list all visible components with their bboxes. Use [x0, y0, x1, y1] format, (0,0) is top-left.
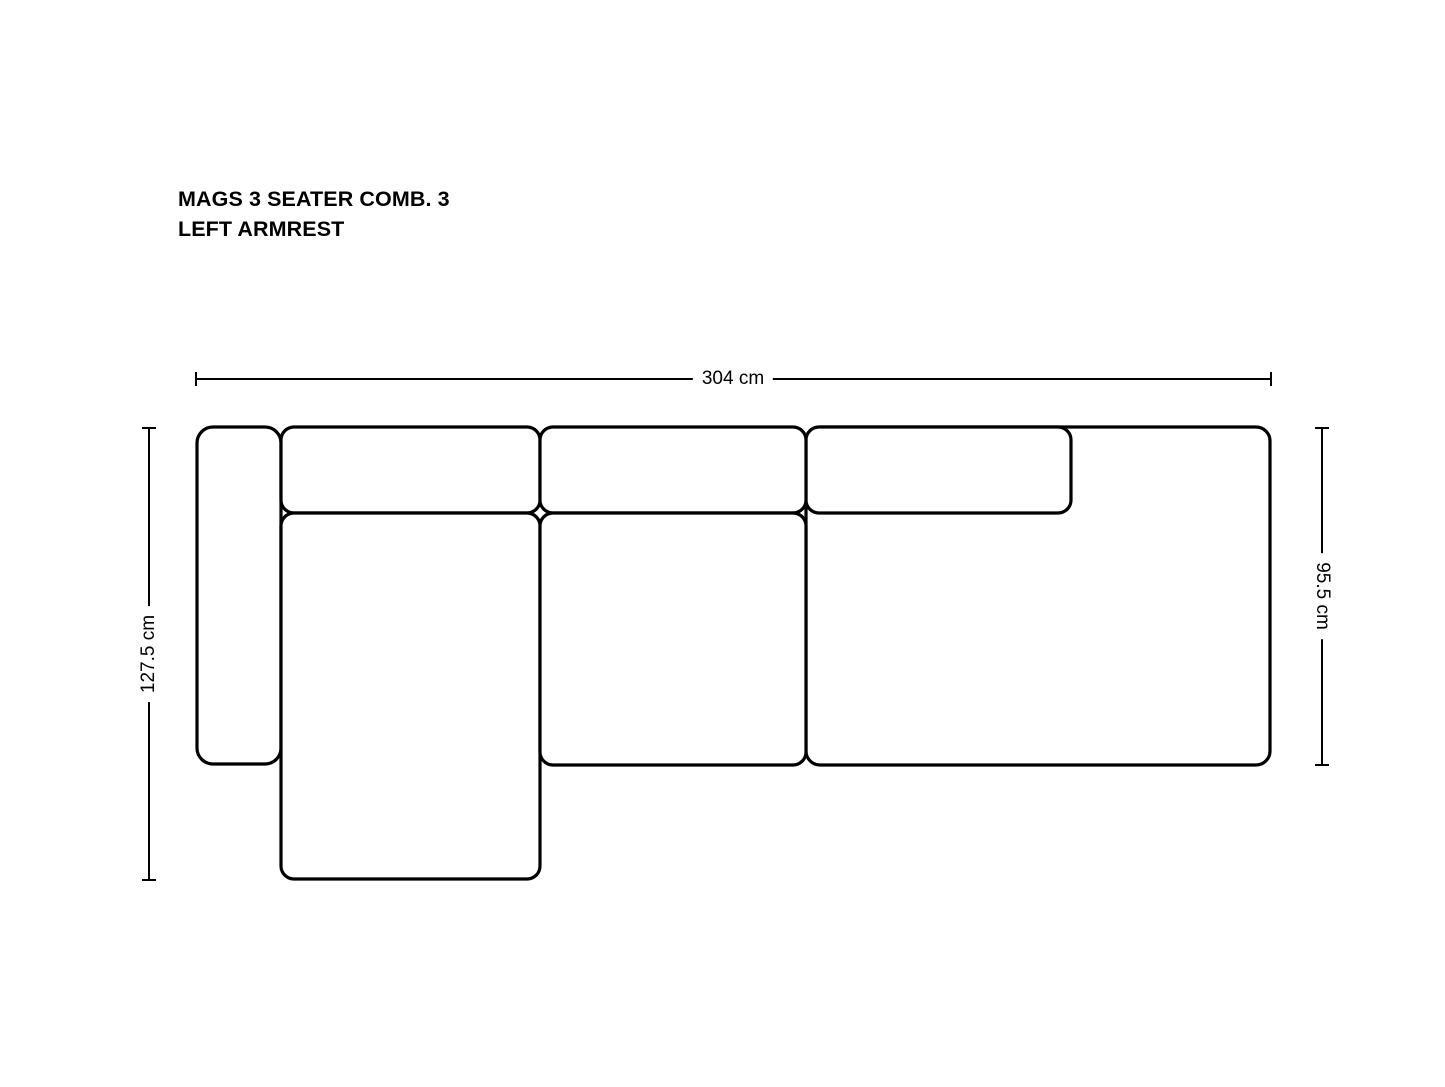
backrest-cushion-right — [806, 427, 1071, 513]
product-diagram-page: MAGS 3 SEATER COMB. 3 LEFT ARMREST 304 c… — [0, 0, 1445, 1087]
left-armrest — [197, 427, 281, 764]
depth-dimension-label: 95.5 cm — [1311, 553, 1333, 639]
sofa-modules — [197, 427, 1270, 879]
chaise-lounge-seat — [281, 513, 540, 879]
backrest-cushion-middle — [540, 427, 806, 513]
middle-seat — [540, 513, 806, 765]
backrest-cushion-left — [281, 427, 540, 513]
height-dimension-label: 127.5 cm — [138, 606, 160, 702]
width-dimension-label: 304 cm — [693, 368, 773, 390]
sofa-dimension-diagram — [0, 0, 1445, 1087]
